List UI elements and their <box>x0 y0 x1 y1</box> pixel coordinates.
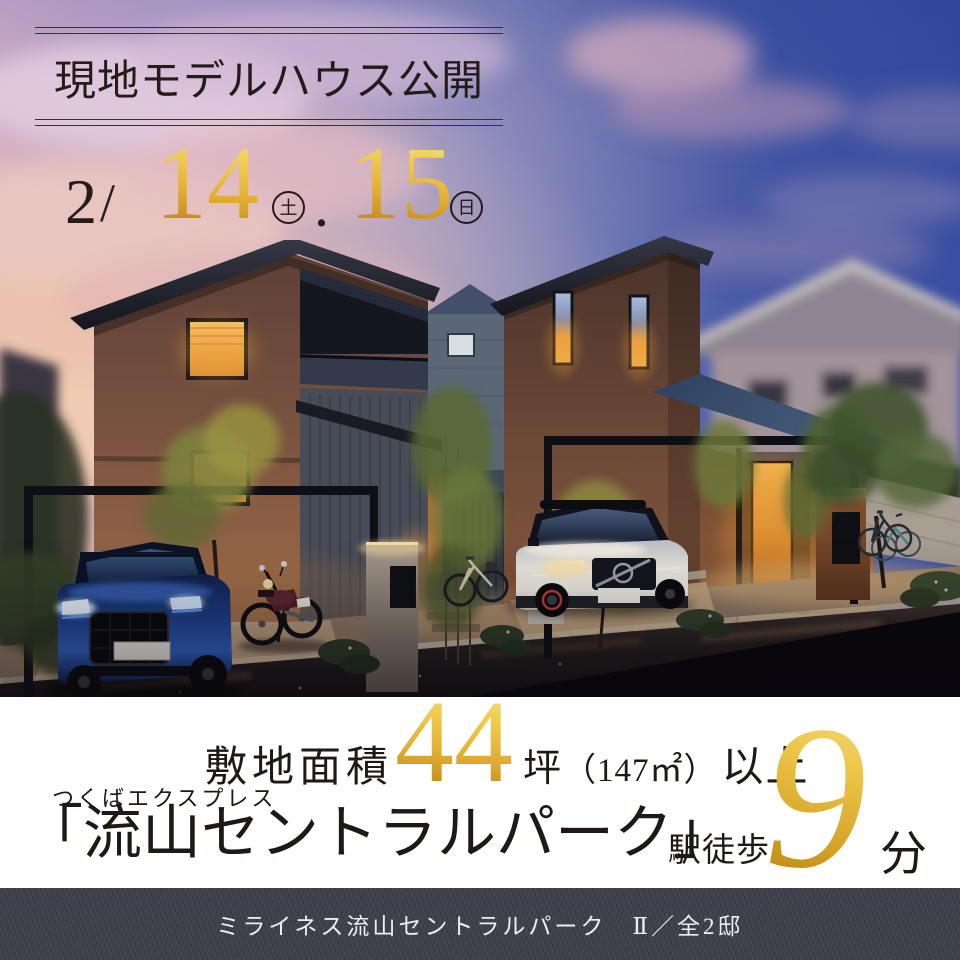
real-estate-ad-poster: 現地モデルハウス公開 2 / 14 土 . 15 日 敷地面積 44 坪 （14… <box>0 0 960 960</box>
date-weekday-sun-badge: 日 <box>450 191 483 224</box>
site-area-sqm: （147㎡） <box>563 743 718 791</box>
site-area-value: 44 <box>395 683 513 801</box>
double-rule-top <box>35 27 503 34</box>
property-specs-band: 敷地面積 44 坪 （147㎡） 以上 つくばエクスプレス 「流山セントラルパー… <box>0 697 960 888</box>
site-area-line: 敷地面積 44 坪 （147㎡） 以上 <box>205 683 810 801</box>
bottom-vignette <box>0 540 960 697</box>
site-area-unit: 坪 <box>523 737 561 792</box>
project-name: ミライネス流山セントラルパーク Ⅱ／全2邸 <box>216 907 743 941</box>
walk-minutes: 9 <box>764 695 867 900</box>
date-day-15: 15 <box>349 132 453 236</box>
date-weekday-sat-badge: 土 <box>272 191 305 224</box>
date-day-14: 14 <box>155 132 259 236</box>
date-month: 2 <box>65 170 97 234</box>
date-separator-dot: . <box>316 190 327 234</box>
walk-minutes-unit: 分 <box>880 815 927 884</box>
date-slash: / <box>100 176 115 230</box>
open-house-header: 現地モデルハウス公開 <box>35 27 503 126</box>
double-rule-bottom <box>35 119 503 126</box>
open-dates: 2 / 14 土 . 15 日 <box>65 140 525 232</box>
walk-label: 駅徒歩 <box>668 823 770 871</box>
project-footer: ミライネス流山セントラルパーク Ⅱ／全2邸 <box>0 888 960 960</box>
station-name: 「流山セントラルパーク」 <box>24 803 732 865</box>
page-title: 現地モデルハウス公開 <box>35 34 503 119</box>
